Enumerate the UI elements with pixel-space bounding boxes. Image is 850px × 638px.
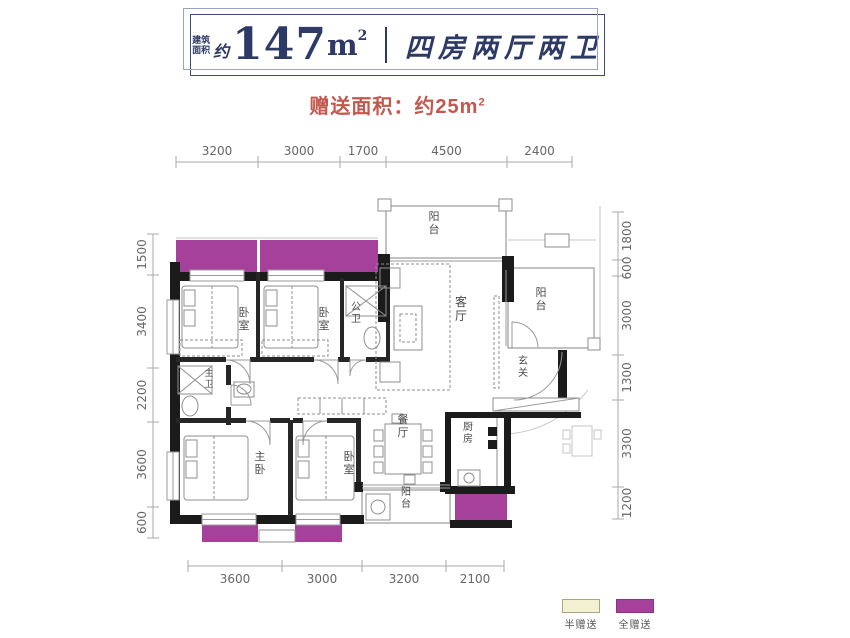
balcony-right-door bbox=[512, 322, 538, 348]
master-bedroom-door bbox=[246, 421, 270, 445]
toilet-master bbox=[182, 396, 198, 416]
floorplan-page: 建筑 面积 约 147 m2 四房两厅两卫 赠送面积：约25m2 bbox=[0, 0, 850, 638]
master-north-wall-b bbox=[270, 418, 290, 423]
room-label-balcony-top: 阳台 bbox=[429, 210, 440, 236]
bottom-dim-value: 2100 bbox=[460, 572, 491, 586]
bed-master bbox=[184, 436, 248, 500]
right-dim-value: 600 bbox=[620, 257, 634, 280]
room-label-public-bath: 公卫 bbox=[351, 302, 361, 325]
full-gift-label: 全赠送 bbox=[619, 616, 652, 631]
bedroom2-door bbox=[314, 360, 338, 384]
pillow bbox=[186, 440, 197, 457]
corridor-wall-c bbox=[338, 357, 350, 362]
legend: 半赠送 全赠送 bbox=[562, 599, 654, 631]
south-step bbox=[259, 530, 295, 542]
top-dim-value: 1700 bbox=[348, 144, 379, 158]
left-dim-value: 3600 bbox=[135, 449, 149, 480]
pillow bbox=[266, 310, 277, 326]
pillow bbox=[266, 290, 277, 306]
stove-burner bbox=[488, 427, 497, 436]
full-gift-zone-below-kitchen bbox=[455, 490, 507, 522]
legend-item-full-gift: 全赠送 bbox=[616, 599, 654, 631]
pillow bbox=[186, 461, 197, 478]
balcony-bottom-west-post bbox=[354, 482, 363, 492]
master-bedroom3-partition bbox=[288, 420, 293, 516]
full-gift-swatch bbox=[616, 599, 654, 613]
neighbor-chair bbox=[563, 444, 570, 453]
kitchen-north-wall bbox=[445, 412, 581, 418]
right-dim-value: 1200 bbox=[620, 488, 634, 519]
toilet-public bbox=[364, 327, 380, 349]
balcony-bottom-east-post bbox=[440, 482, 451, 492]
room-label-master-bath: 主卫 bbox=[204, 367, 213, 390]
neighbor-table bbox=[572, 426, 592, 456]
stove-burner bbox=[488, 440, 497, 449]
chair bbox=[423, 430, 432, 441]
room-label-balcony-bottom: 阳台 bbox=[401, 486, 411, 510]
left-dim-value: 600 bbox=[135, 511, 149, 534]
room-label-master-bedroom: 主卧 bbox=[255, 450, 266, 476]
balcony-top-post-left bbox=[378, 199, 391, 211]
living-east-post bbox=[502, 256, 514, 302]
top-dim-value: 3200 bbox=[202, 144, 233, 158]
washer-drum bbox=[371, 500, 385, 514]
chair bbox=[404, 475, 415, 484]
washer bbox=[366, 494, 390, 520]
corridor-wall-b bbox=[250, 357, 314, 362]
bedroom3-dining-partition bbox=[356, 420, 361, 482]
kitchen-east-wall bbox=[504, 412, 511, 494]
neighbor-chair bbox=[563, 430, 570, 439]
armchair bbox=[380, 362, 400, 382]
gift-zone-south-wall bbox=[450, 520, 512, 528]
left-dim-value: 1500 bbox=[135, 239, 149, 270]
corridor-wall-a bbox=[176, 357, 226, 362]
master-north-wall-a bbox=[176, 418, 246, 423]
bedroom1-2-partition bbox=[256, 272, 260, 358]
neighbor-chair bbox=[594, 430, 601, 439]
corridor-wall-d bbox=[366, 357, 390, 362]
room-label-dining-room: 餐厅 bbox=[398, 412, 409, 439]
room-label-bedroom-2: 卧室 bbox=[319, 306, 330, 332]
coffee-table bbox=[394, 306, 422, 350]
right-dim-value: 1800 bbox=[620, 221, 634, 252]
half-gift-label: 半赠送 bbox=[565, 616, 598, 631]
left-dim-value: 3400 bbox=[135, 306, 149, 337]
full-gift-zone-above-bedroom1 bbox=[176, 240, 257, 272]
top-dim-value: 2400 bbox=[524, 144, 555, 158]
basin bbox=[237, 384, 251, 394]
coffee-table-inner bbox=[400, 314, 416, 342]
half-gift-swatch bbox=[562, 599, 600, 613]
chair bbox=[374, 462, 383, 473]
bottom-dim-value: 3200 bbox=[389, 572, 420, 586]
pillow bbox=[184, 310, 195, 326]
bed-bedroom1 bbox=[182, 286, 238, 348]
right-dim-value: 3300 bbox=[620, 428, 634, 459]
room-label-kitchen: 厨房 bbox=[463, 421, 473, 445]
balcony-right-corner-post bbox=[588, 338, 600, 350]
balcony-right-top-post bbox=[545, 234, 569, 247]
room-label-bedroom-3: 卧室 bbox=[344, 450, 355, 476]
kitchen-west-wall bbox=[445, 412, 451, 494]
top-dim-value: 4500 bbox=[431, 144, 462, 158]
public-bath-east-wall bbox=[386, 322, 390, 358]
chair bbox=[423, 446, 432, 457]
bottom-dim-value: 3000 bbox=[307, 572, 338, 586]
right-dim-value: 3000 bbox=[620, 300, 634, 331]
legend-item-half-gift: 半赠送 bbox=[562, 599, 600, 631]
room-label-bedroom-1: 卧室 bbox=[239, 306, 250, 332]
room-label-living-room: 客厅 bbox=[455, 294, 467, 323]
half-gift-balcony-top bbox=[386, 206, 506, 258]
top-dim-value: 3000 bbox=[284, 144, 315, 158]
chair bbox=[423, 462, 432, 473]
pillow bbox=[184, 290, 195, 306]
bedroom3-north-wall-a bbox=[293, 418, 303, 423]
room-label-balcony-right: 阳台 bbox=[536, 286, 547, 312]
master-bath-wall-a bbox=[226, 365, 231, 385]
bedroom3-door bbox=[303, 421, 327, 445]
chair bbox=[374, 446, 383, 457]
room-label-foyer: 玄关 bbox=[518, 354, 528, 379]
walls-layer bbox=[170, 254, 581, 528]
left-dim-value: 2200 bbox=[135, 380, 149, 411]
full-gift-zone-above-bedroom2 bbox=[260, 240, 378, 272]
bedroom3-north-wall-b bbox=[327, 418, 361, 423]
floorplan-drawing: 3200300017004500240036003000320021001500… bbox=[0, 0, 850, 638]
balcony-top-post-right bbox=[499, 199, 512, 211]
foyer-east-wall bbox=[558, 350, 567, 402]
bottom-dim-value: 3600 bbox=[220, 572, 251, 586]
public-bath-door bbox=[350, 360, 366, 376]
pillow bbox=[298, 461, 309, 478]
kitchen-south-wall bbox=[445, 486, 515, 494]
tv-cabinet bbox=[494, 296, 499, 388]
sink-counter bbox=[458, 470, 480, 486]
chair bbox=[374, 430, 383, 441]
right-dim-value: 1300 bbox=[620, 362, 634, 393]
half-gift-balcony-right bbox=[508, 268, 594, 348]
sink bbox=[464, 473, 474, 483]
bedroom2-bath-partition bbox=[340, 278, 344, 358]
bed-bedroom2 bbox=[264, 286, 318, 348]
